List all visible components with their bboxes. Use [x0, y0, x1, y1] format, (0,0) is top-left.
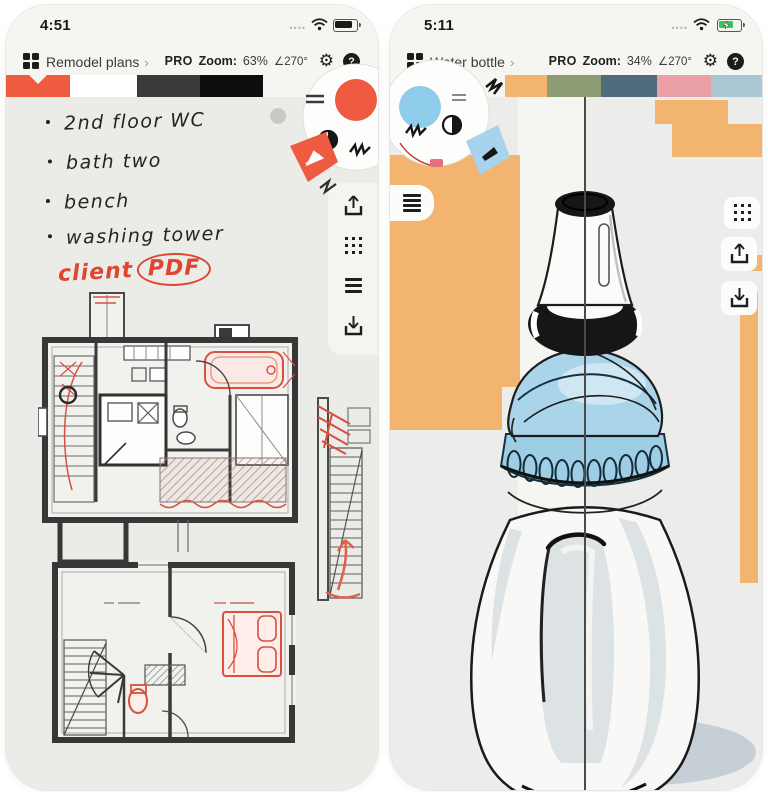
note-line: 2nd floor WC: [46, 109, 206, 135]
import-icon[interactable]: [344, 315, 363, 336]
phone-left: 4:51 •••• Remodel plans › PRO Zoom: 63% …: [6, 5, 378, 790]
orange-shape: [740, 293, 758, 583]
chevron-right-icon: ›: [144, 55, 148, 70]
layers-tab[interactable]: [390, 185, 434, 221]
document-title: Remodel plans: [46, 54, 139, 70]
note-line: bath two: [48, 150, 162, 175]
pencil-tool-icon: [486, 79, 502, 94]
palette-swatch[interactable]: [711, 75, 762, 97]
app-store-screenshot-pair: 4:51 •••• Remodel plans › PRO Zoom: 63% …: [0, 0, 768, 792]
tool-wheel[interactable]: [262, 60, 378, 200]
selected-color-notch: [29, 75, 47, 84]
bottle-sketch: [450, 100, 715, 790]
import-icon[interactable]: [730, 287, 749, 308]
palette-swatch[interactable]: [547, 75, 601, 97]
palette-swatch[interactable]: [601, 75, 657, 97]
note-line: bench: [46, 190, 130, 214]
settings-gear-button[interactable]: ⚙: [703, 52, 718, 69]
eraser-indicator: [430, 159, 443, 167]
zoom-label: Zoom:: [199, 54, 237, 68]
battery-icon: [333, 19, 358, 32]
client-pdf-annotation: clientPDF: [57, 251, 212, 292]
zoom-value[interactable]: 34%: [627, 54, 652, 68]
help-button[interactable]: ?: [727, 53, 744, 70]
note-line: washing tower: [48, 223, 225, 250]
wifi-icon: [311, 18, 328, 31]
gallery-button[interactable]: [23, 53, 39, 69]
color-palette: [6, 75, 263, 97]
zoom-label: Zoom:: [583, 54, 621, 68]
floor-plan-lower: [48, 555, 308, 775]
rotation-value[interactable]: ∠270°: [658, 54, 692, 68]
palette-swatch[interactable]: [70, 75, 137, 97]
palette-swatch[interactable]: [137, 75, 200, 97]
floor-plan-partial: [312, 390, 378, 615]
tool-handle-icon: [320, 181, 336, 192]
pro-badge: PRO: [549, 54, 577, 68]
active-color-swatch: [399, 86, 441, 128]
active-color-swatch: [335, 79, 377, 121]
precision-grid-icon[interactable]: [733, 203, 752, 222]
undocked-dot-icon: [270, 108, 286, 124]
cellular-dots-icon: ••••: [671, 23, 688, 33]
status-time: 4:51: [40, 17, 71, 34]
battery-charging-icon: [717, 19, 742, 32]
tool-wheel[interactable]: [390, 55, 520, 185]
phone-right: 5:11 •••• Water bottle › PRO Zoom: 34% ∠…: [390, 5, 762, 790]
document-title-button[interactable]: Remodel plans ›: [46, 54, 149, 70]
pro-badge: PRO: [165, 54, 193, 68]
precision-grid-icon[interactable]: [344, 236, 363, 255]
palette-swatch[interactable]: [657, 75, 711, 97]
floor-plan-upper: [38, 290, 330, 565]
share-icon[interactable]: [730, 243, 749, 264]
color-palette: [505, 75, 762, 97]
drawing-canvas[interactable]: 2nd floor WC bath two bench washing towe…: [6, 97, 378, 790]
drawing-canvas[interactable]: [390, 97, 762, 790]
status-time: 5:11: [424, 17, 454, 34]
symmetry-guide-line[interactable]: [584, 97, 586, 790]
layers-icon[interactable]: [344, 277, 363, 294]
cellular-dots-icon: ••••: [289, 23, 306, 33]
wifi-icon: [693, 18, 710, 31]
palette-swatch[interactable]: [200, 75, 263, 97]
